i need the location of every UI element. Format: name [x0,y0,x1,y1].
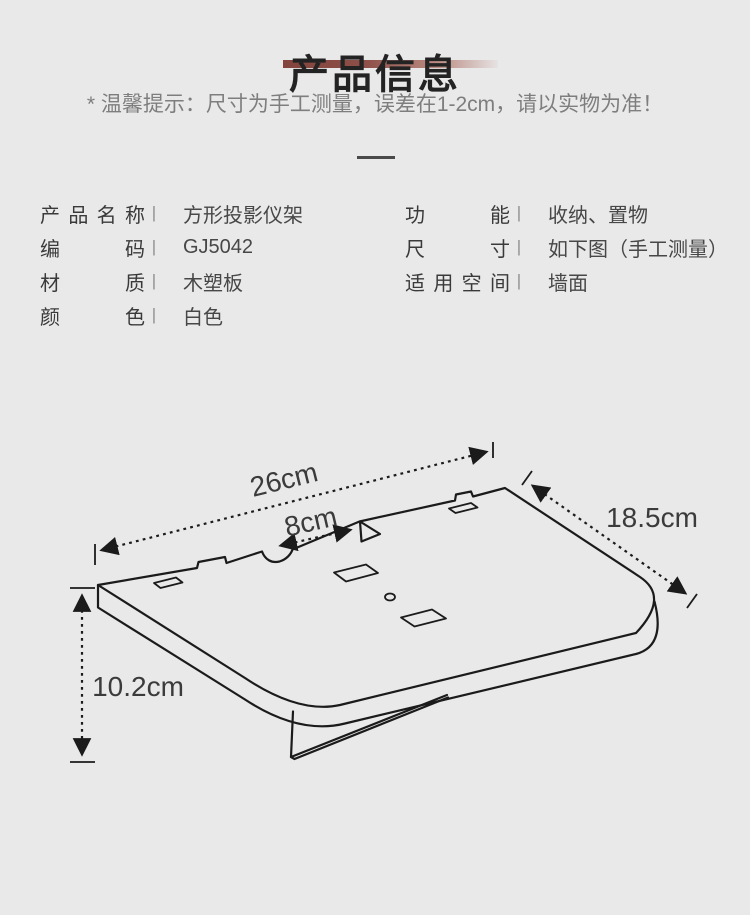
keyhole-back-right [449,503,478,513]
vent-hole-lower [401,610,446,627]
dimension-height: 10.2cm [70,588,184,762]
dimension-width-label: 26cm [247,456,321,503]
dimension-slot-label: 8cm [281,500,340,542]
dimension-slot: 8cm [281,500,350,545]
dimension-width: 26cm [95,442,493,565]
dimension-drawing: 26cm 8cm 18.5cm 10.2cm [0,0,750,915]
dimension-depth-label: 18.5cm [606,502,698,533]
vent-hole-upper [334,565,378,582]
shelf-thickness-edge [98,585,658,726]
product-info-page: 产品信息 * 温馨提示：尺寸为手工测量，误差在1-2cm，请以实物为准！ 产品名… [0,0,750,915]
screw-hole [385,594,395,601]
mount-tab-flap [360,522,380,542]
keyhole-back-left [154,578,183,589]
page-title: 产品信息 [0,53,750,97]
dimension-height-label: 10.2cm [92,671,184,702]
dimension-depth: 18.5cm [522,471,698,608]
